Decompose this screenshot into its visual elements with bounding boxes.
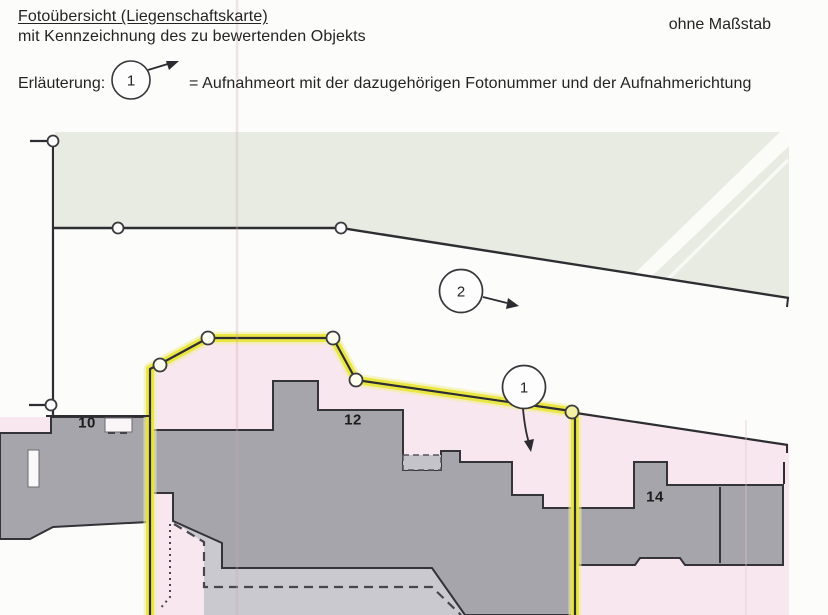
page-title: Fotoübersicht (Liegenschaftskarte) [18, 8, 268, 26]
house-number-10: 10 [78, 416, 96, 431]
photo-marker-2 [440, 270, 520, 313]
page-subtitle: mit Kennzeichnung des zu bewertenden Obj… [18, 28, 366, 46]
legend-symbol [112, 61, 179, 99]
legend-label: Erläuterung: [18, 75, 105, 93]
legend-symbol-number: 1 [127, 74, 135, 89]
scanned-document-page: Fotoübersicht (Liegenschaftskarte) mit K… [0, 0, 828, 615]
photo-direction-arrow-right [506, 298, 519, 309]
house-number-14: 14 [646, 490, 664, 505]
legend-direction-arrow [166, 61, 179, 70]
building-10 [0, 417, 148, 539]
photo-marker-2-number: 2 [457, 285, 465, 300]
scale-note: ohne Maßstab [669, 16, 771, 34]
photo-marker-1-number: 1 [520, 381, 528, 396]
building-10-notch [28, 450, 39, 487]
building-12-porch [403, 455, 441, 470]
building-10-courtyard [105, 418, 132, 432]
field-area [55, 132, 789, 298]
house-number-12: 12 [344, 413, 362, 428]
legend-description: = Aufnahmeort mit der dazugehörigen Foto… [189, 75, 752, 93]
